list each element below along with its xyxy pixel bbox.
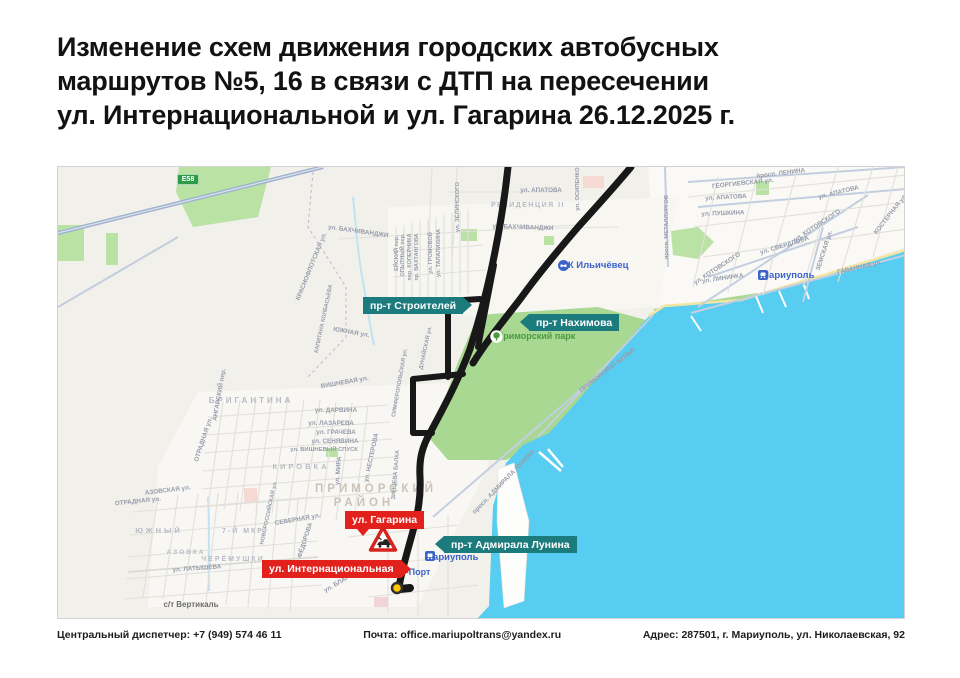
street-label: ул. ОСИПЕНКО (575, 167, 581, 211)
district-label: ЮЖНЫЙ (135, 526, 182, 535)
road-number-badge: E58 (177, 174, 199, 185)
street-label: пер. КОПЕРНИКА (407, 233, 413, 280)
arrow-right-icon (463, 297, 472, 313)
city-map: РЕЗИДЕНЦИЯ IIБРИГАНТИНАКИРОВКАПРИМОРСКИЙ… (57, 166, 905, 619)
arrow-left-icon (520, 314, 529, 330)
street-label: ул. СЕНЯВИНА (312, 438, 359, 445)
street-label: ул. ЛАЗАРЕВА (308, 420, 354, 427)
email: Почта: office.mariupoltrans@yandex.ru (363, 629, 561, 641)
building (244, 488, 257, 502)
badge-prt-admirala-lunina: пр-т Адмирала Лунина (444, 536, 577, 553)
district-label: ЧЕРЁМУШКИ (201, 555, 264, 563)
street-label: пр. ВАХТАНГОВА (414, 233, 420, 280)
district-label: РАЙОН (334, 496, 394, 509)
district-label: КИРОВКА (272, 462, 329, 471)
street-label: ул. ВИШНЕВЫЙ СПУСК (290, 445, 358, 453)
street-label: ул. ЗЕЛИНСКОГО (455, 182, 461, 232)
building (374, 597, 388, 607)
address: Адрес: 287501, г. Мариуполь, ул. Николае… (643, 629, 905, 641)
district-label: АЗОВКА (166, 549, 205, 556)
street-label: ул. ГРАЧЕВА (316, 429, 356, 436)
street-label: ЕЙСКИЙ пер. (392, 235, 400, 271)
building (583, 176, 604, 188)
poi-sk-ilyichevets: СК Ильичёвец (558, 260, 628, 271)
arrow-right-icon (401, 560, 411, 578)
badge-prt-stroiteley: пр-т Строителей (363, 297, 463, 314)
poi-label: СК Ильичёвец (561, 260, 628, 271)
poi-mariupol-station-ne: Мариуполь (758, 270, 814, 281)
street-label: ОПЫТНЫЙ пер. (398, 233, 406, 277)
district-label: 7-Й МКР (222, 526, 264, 535)
field-green (544, 236, 554, 245)
badge-label: пр-т Адмирала Лунина (451, 539, 570, 551)
field-green (106, 233, 118, 265)
dispatcher-phone: Центральный диспетчер: +7 (949) 574 46 1… (57, 629, 282, 641)
terminus-stop-dot (392, 583, 402, 593)
poster-title: Изменение схем движения городских автобу… (57, 30, 857, 132)
badge-ul-internatsionalnaya: ул. Интернациональная (262, 560, 401, 578)
poi-label: Мариуполь (761, 270, 814, 281)
badge-label: пр-т Нахимова (536, 317, 612, 329)
badge-label: пр-т Строителей (370, 300, 456, 312)
street-label: ул. ТАЛАЛИХИНА (436, 229, 442, 277)
street-label: ул. АПАТОВА (520, 187, 562, 194)
contact-footer: Центральный диспетчер: +7 (949) 574 46 1… (57, 629, 905, 641)
arrow-left-icon (435, 536, 444, 552)
street-label: ул. ГРОМОВОЙ (426, 232, 434, 274)
badge-prt-nakhimova: пр-т Нахимова (529, 314, 619, 331)
poi-primorsky-park: Приморский парк (490, 330, 582, 341)
street-label: просп. МЕТАЛЛУРГОВ (664, 195, 670, 259)
district-label: с/т Вертикаль (163, 600, 218, 609)
poi-label: Приморский парк (497, 331, 576, 341)
street-label: ул. ДАРВИНА (315, 407, 358, 414)
badge-label: ул. Интернациональная (269, 563, 394, 575)
poster: { "title": {"text": "Изменение схем движ… (0, 0, 960, 678)
